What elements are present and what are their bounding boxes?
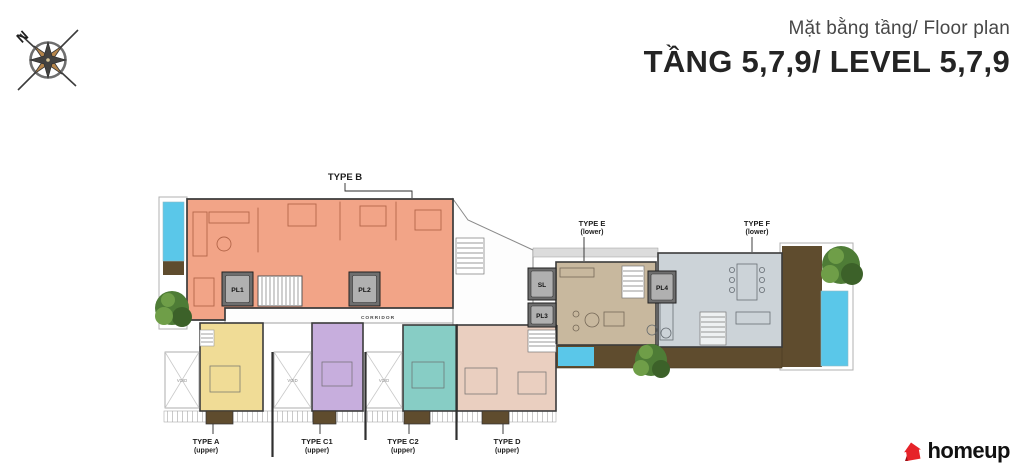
brand-name: homeup — [927, 438, 1010, 464]
tree-icon-right — [821, 246, 863, 285]
unit-sublabel-type-e: (lower) — [581, 229, 604, 236]
pool-bottom — [558, 347, 594, 366]
unit-label-type-a: TYPE A — [193, 437, 220, 446]
unit-label-type-c1: TYPE C1 — [301, 437, 332, 446]
elevator-sl-label: SL — [538, 282, 546, 289]
elevator-pl4: PL4 — [648, 271, 676, 303]
house-icon — [900, 440, 924, 462]
unit-label-type-b: TYPE B — [328, 172, 362, 183]
elevator-pl3-label: PL3 — [536, 313, 548, 320]
unit-sublabel-type-d: (upper) — [495, 448, 519, 455]
corridor-label: CORRIDOR — [361, 315, 395, 321]
pool-right — [821, 291, 848, 366]
wood-deck-right — [782, 246, 822, 367]
elevator-pl2: PL2 — [349, 272, 380, 306]
floor-plan-drawing: VOID VOID VOID — [0, 0, 1024, 474]
unit-label-type-c2: TYPE C2 — [387, 437, 418, 446]
unit-sublabel-type-a: (upper) — [194, 448, 218, 455]
unit-sublabel-type-c2: (upper) — [391, 448, 415, 455]
wood-deck-left — [163, 261, 184, 275]
homeup-logo: homeup — [900, 438, 1010, 464]
unit-label-type-e: TYPE E — [579, 219, 606, 228]
unit-sublabel-type-f: (lower) — [746, 229, 769, 236]
elevator-pl1-label: PL1 — [231, 287, 244, 294]
unit-label-type-f: TYPE F — [744, 219, 771, 228]
elevator-pl2-label: PL2 — [358, 287, 371, 294]
elevator-pl4-label: PL4 — [656, 285, 668, 292]
void-label-2: VOID — [287, 378, 297, 383]
pool-left — [163, 202, 184, 261]
void-label-1: VOID — [177, 378, 187, 383]
unit-label-type-d: TYPE D — [493, 437, 521, 446]
elevator-pl1: PL1 — [222, 272, 253, 306]
void-label-3: VOID — [379, 378, 389, 383]
elevator-sl: SL — [528, 268, 556, 300]
unit-type-c2-area — [403, 325, 457, 411]
unit-sublabel-type-c1: (upper) — [305, 448, 329, 455]
unit-type-c1-area — [312, 323, 363, 411]
elevator-pl3: PL3 — [528, 303, 556, 327]
upper-wall-band — [533, 248, 658, 257]
